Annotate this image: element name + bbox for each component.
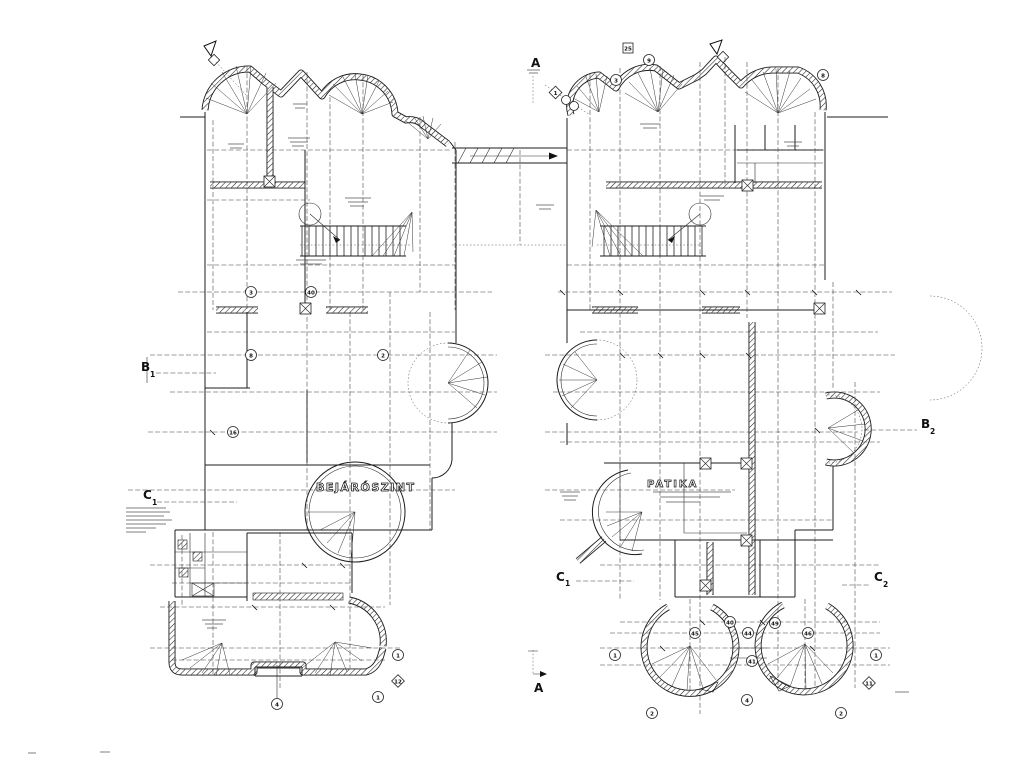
stairs-left xyxy=(299,203,413,256)
axis-bubble: 41 xyxy=(747,656,758,667)
x-column xyxy=(741,535,752,546)
section-marker-b2: B 2 xyxy=(864,417,935,436)
section-label-c1-bottom-sub: 1 xyxy=(565,579,570,588)
axis-bubble: 46 xyxy=(803,628,814,639)
axis-bubble: 4 xyxy=(275,703,279,709)
section-label-a-top: A xyxy=(531,56,541,70)
x-column xyxy=(700,458,711,469)
annotation-scribbles xyxy=(28,104,909,753)
axis-bubble-label: 4 xyxy=(745,699,749,705)
stairs-right xyxy=(592,203,711,256)
section-marker-c2: C 2 xyxy=(842,570,888,589)
terrace-left xyxy=(182,642,372,710)
axis-bubble: 1 xyxy=(610,650,621,661)
axis-bubble: 8 xyxy=(246,350,257,361)
right-wing-wall-bands xyxy=(570,59,869,693)
axis-bubble-label: 1 xyxy=(874,654,878,660)
axis-bubble-label: 3 xyxy=(614,79,618,85)
connector-bridge xyxy=(452,85,590,163)
axis-bubble-label: 45 xyxy=(691,632,699,638)
axis-bubble: 40 xyxy=(306,287,317,298)
terrace-right xyxy=(652,644,833,690)
axis-bubble-label: 2 xyxy=(839,712,843,718)
left-wing-walls xyxy=(175,112,456,676)
section-label-b1: B xyxy=(141,360,150,374)
room-label-right: PATIKA xyxy=(647,479,698,490)
section-marker-c1-bottom: C 1 xyxy=(556,570,634,588)
section-label-b2: B xyxy=(921,417,930,431)
axis-bubble-label: 9 xyxy=(647,59,651,65)
axis-bubble-label: 8 xyxy=(249,354,253,360)
round-bay-right xyxy=(557,340,637,420)
dimension-lines xyxy=(128,57,895,714)
x-column xyxy=(814,303,825,314)
right-wing xyxy=(557,40,982,693)
axis-bubble-label: 12 xyxy=(394,680,402,686)
axis-bubble: 45 xyxy=(690,628,701,639)
x-column xyxy=(742,180,753,191)
left-wing-wall-bands xyxy=(172,69,448,672)
right-wing-walls xyxy=(567,112,888,692)
section-label-a-bottom: A xyxy=(534,681,544,695)
axis-bubble: 12 xyxy=(392,675,405,688)
axis-bubble: 40 xyxy=(725,617,736,628)
axis-bubble: 3 xyxy=(246,287,257,298)
axis-bubble-label: 40 xyxy=(307,291,315,297)
section-label-c2-sub: 2 xyxy=(883,580,888,589)
section-label-c2: C xyxy=(874,570,883,584)
axis-bubble: 25 xyxy=(623,43,633,53)
axis-bubble-label: 1 xyxy=(613,654,617,660)
blueprint-page: A A B 1 B 2 C 1 C 1 xyxy=(0,0,1024,782)
axis-bubble-label: 8 xyxy=(821,74,825,80)
axis-bubble-label: 44 xyxy=(744,632,752,638)
left-top-fan-lines xyxy=(206,66,441,139)
axis-bubble-label: 49 xyxy=(771,622,779,628)
section-label-c1-left: C xyxy=(143,488,152,502)
floor-plan-canvas: A A B 1 B 2 C 1 C 1 xyxy=(0,0,1024,782)
axis-bubble-label: 25 xyxy=(624,47,632,53)
axis-bubble: 9 xyxy=(644,55,655,66)
section-label-c1-left-sub: 1 xyxy=(152,498,157,507)
axis-bubble-label: 1 xyxy=(554,91,558,97)
section-marker-c1-left: C 1 xyxy=(143,488,237,507)
axis-bubble-label: 16 xyxy=(229,431,237,437)
axis-bubble-label: 1 xyxy=(396,654,400,660)
axis-bubble: 11 xyxy=(863,677,876,690)
x-column xyxy=(300,303,311,314)
axis-bubble-label: 40 xyxy=(726,621,734,627)
room-label-left: BEJÁRÓSZINT xyxy=(316,481,416,494)
x-room xyxy=(192,583,214,596)
room-labels: BEJÁRÓSZINT PATIKA xyxy=(316,479,698,494)
axis-bubble: 1 xyxy=(549,86,562,99)
axis-bubble: 44 xyxy=(743,628,754,639)
section-label-b1-sub: 1 xyxy=(150,370,155,379)
section-marker-a-bottom: A xyxy=(528,650,547,695)
axis-bubble: 2 xyxy=(647,708,658,719)
axis-bubble-label: 2 xyxy=(650,712,654,718)
axis-bubble-label: 2 xyxy=(381,354,385,360)
section-label-b2-sub: 2 xyxy=(930,427,935,436)
section-label-c1-bottom: C xyxy=(556,570,565,584)
x-column xyxy=(264,176,275,187)
axis-bubble: 2 xyxy=(836,708,847,719)
section-marker-a-top: A xyxy=(527,56,541,104)
axis-bubble: 8 xyxy=(818,70,829,81)
axis-bubble: 2 xyxy=(378,350,389,361)
axis-bubble: 1 xyxy=(871,650,882,661)
x-column xyxy=(700,580,711,591)
axis-bubble-label: 3 xyxy=(249,291,253,297)
axis-bubble: 4 xyxy=(742,695,753,706)
axis-bubble: 49 xyxy=(770,618,781,629)
axis-bubbles: 3 40 8 2 16 9 3 8 1 25 40 45 44 49 46 41… xyxy=(228,43,882,719)
axis-bubble: 3 xyxy=(611,75,622,86)
axis-bubble-label: 41 xyxy=(748,660,756,666)
axis-bubble: 1 xyxy=(393,650,404,661)
axis-bubble-label: 1 xyxy=(376,696,380,702)
right-side-bulge xyxy=(828,296,982,463)
axis-bubble-label: 46 xyxy=(804,632,812,638)
axis-bubble: 16 xyxy=(228,427,239,438)
x-column xyxy=(741,458,752,469)
axis-bubble-label: 11 xyxy=(865,682,873,688)
axis-bubble: 1 xyxy=(373,692,384,703)
axis-bubble-label: 4 xyxy=(275,703,279,709)
